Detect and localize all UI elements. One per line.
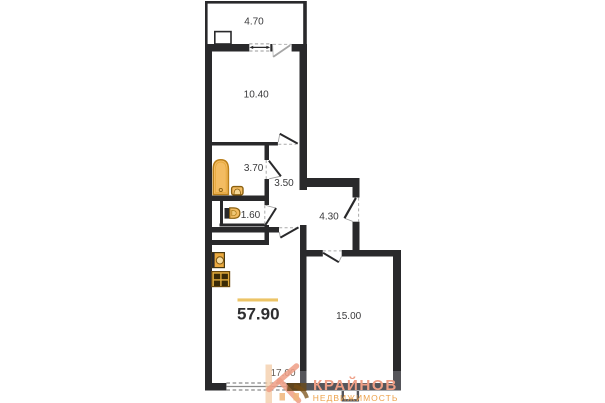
svg-text:4.30: 4.30 xyxy=(319,211,339,222)
svg-text:10.40: 10.40 xyxy=(244,89,269,100)
svg-text:НЕДВИЖИМОСТЬ: НЕДВИЖИМОСТЬ xyxy=(313,393,399,403)
svg-text:57.90: 57.90 xyxy=(237,305,280,324)
svg-text:4.70: 4.70 xyxy=(244,17,264,28)
svg-text:15.00: 15.00 xyxy=(336,311,361,322)
svg-text:1.60: 1.60 xyxy=(241,210,261,221)
svg-text:3.70: 3.70 xyxy=(244,163,264,174)
svg-text:3.50: 3.50 xyxy=(274,178,294,189)
svg-text:КРАЙНОВ: КРАЙНОВ xyxy=(313,376,398,394)
